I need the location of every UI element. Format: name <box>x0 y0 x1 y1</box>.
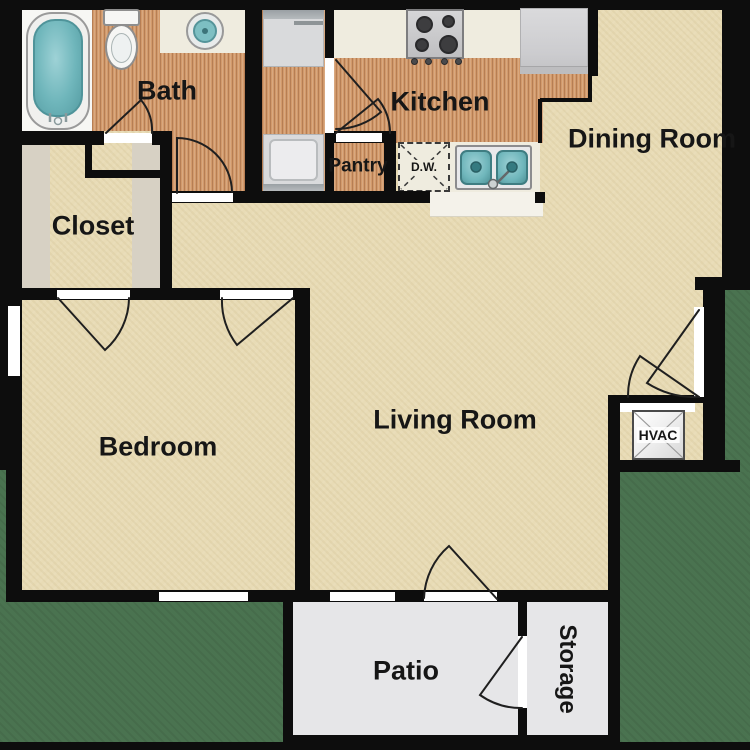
wall <box>160 131 172 300</box>
bedroom-label: Bedroom <box>99 434 218 461</box>
bedroom-door-opening <box>220 290 293 299</box>
dishwasher-label: D.W. <box>409 160 439 174</box>
kitchen-sink-basin <box>496 150 528 185</box>
bedroom-window <box>8 306 20 376</box>
stove-burner <box>416 16 433 33</box>
floor-plan: Bath Closet Kitchen Pantry Dining Room L… <box>0 0 750 750</box>
dining-room-label: Dining Room <box>568 126 736 153</box>
storage-label: Storage <box>555 624 579 713</box>
toilet-seat <box>111 33 132 63</box>
dryer-base <box>263 184 324 191</box>
washer-control-panel <box>263 10 324 19</box>
patio-door-opening <box>424 592 497 601</box>
wall <box>0 742 750 750</box>
wall <box>608 460 740 472</box>
stove-icon <box>406 9 464 59</box>
wall <box>152 131 160 145</box>
entry-door-opening <box>694 307 704 397</box>
pantry-door-opening <box>336 133 382 142</box>
laundry-door-opening <box>325 58 334 133</box>
stove-knob <box>411 58 418 65</box>
kitchen-sink-basin <box>460 150 492 185</box>
floor-edge <box>540 98 592 102</box>
bath-door-opening <box>104 133 152 143</box>
stove-burner <box>415 38 429 52</box>
closet-door-opening <box>57 290 130 299</box>
wall <box>6 590 310 602</box>
wall <box>283 600 293 747</box>
living-room-window <box>330 592 395 601</box>
closet-label: Closet <box>52 213 135 240</box>
wall <box>85 170 163 178</box>
wall <box>6 0 22 602</box>
wall <box>703 285 725 472</box>
bathtub-water <box>33 19 83 117</box>
patio-label: Patio <box>373 658 439 685</box>
hvac-label: HVAC <box>637 427 680 443</box>
bathroom-sink-drain <box>202 28 208 34</box>
wall <box>295 288 310 602</box>
refrigerator-icon <box>520 8 588 74</box>
wall <box>588 8 598 76</box>
washer-detail <box>294 21 323 25</box>
wall <box>608 395 620 747</box>
stove-knob <box>441 58 448 65</box>
storage-door-opening <box>518 636 527 708</box>
stove-burner <box>442 15 455 28</box>
stove-burner <box>439 35 458 54</box>
floor-edge <box>538 99 542 143</box>
bedroom-window <box>159 592 248 601</box>
pantry-label: Pantry <box>328 157 387 176</box>
stove-knob <box>455 58 462 65</box>
wall <box>535 192 545 203</box>
kitchen-label: Kitchen <box>390 89 489 116</box>
grass <box>722 280 750 472</box>
bath-hall-door-opening <box>172 193 233 202</box>
breakfast-bar-counter <box>430 192 543 217</box>
dryer-door <box>269 139 318 181</box>
wall <box>615 395 703 403</box>
living-room-label: Living Room <box>373 407 537 434</box>
stove-knob <box>425 58 432 65</box>
wall <box>245 8 262 203</box>
bath-label: Bath <box>137 78 197 105</box>
refrigerator-base <box>520 66 588 74</box>
